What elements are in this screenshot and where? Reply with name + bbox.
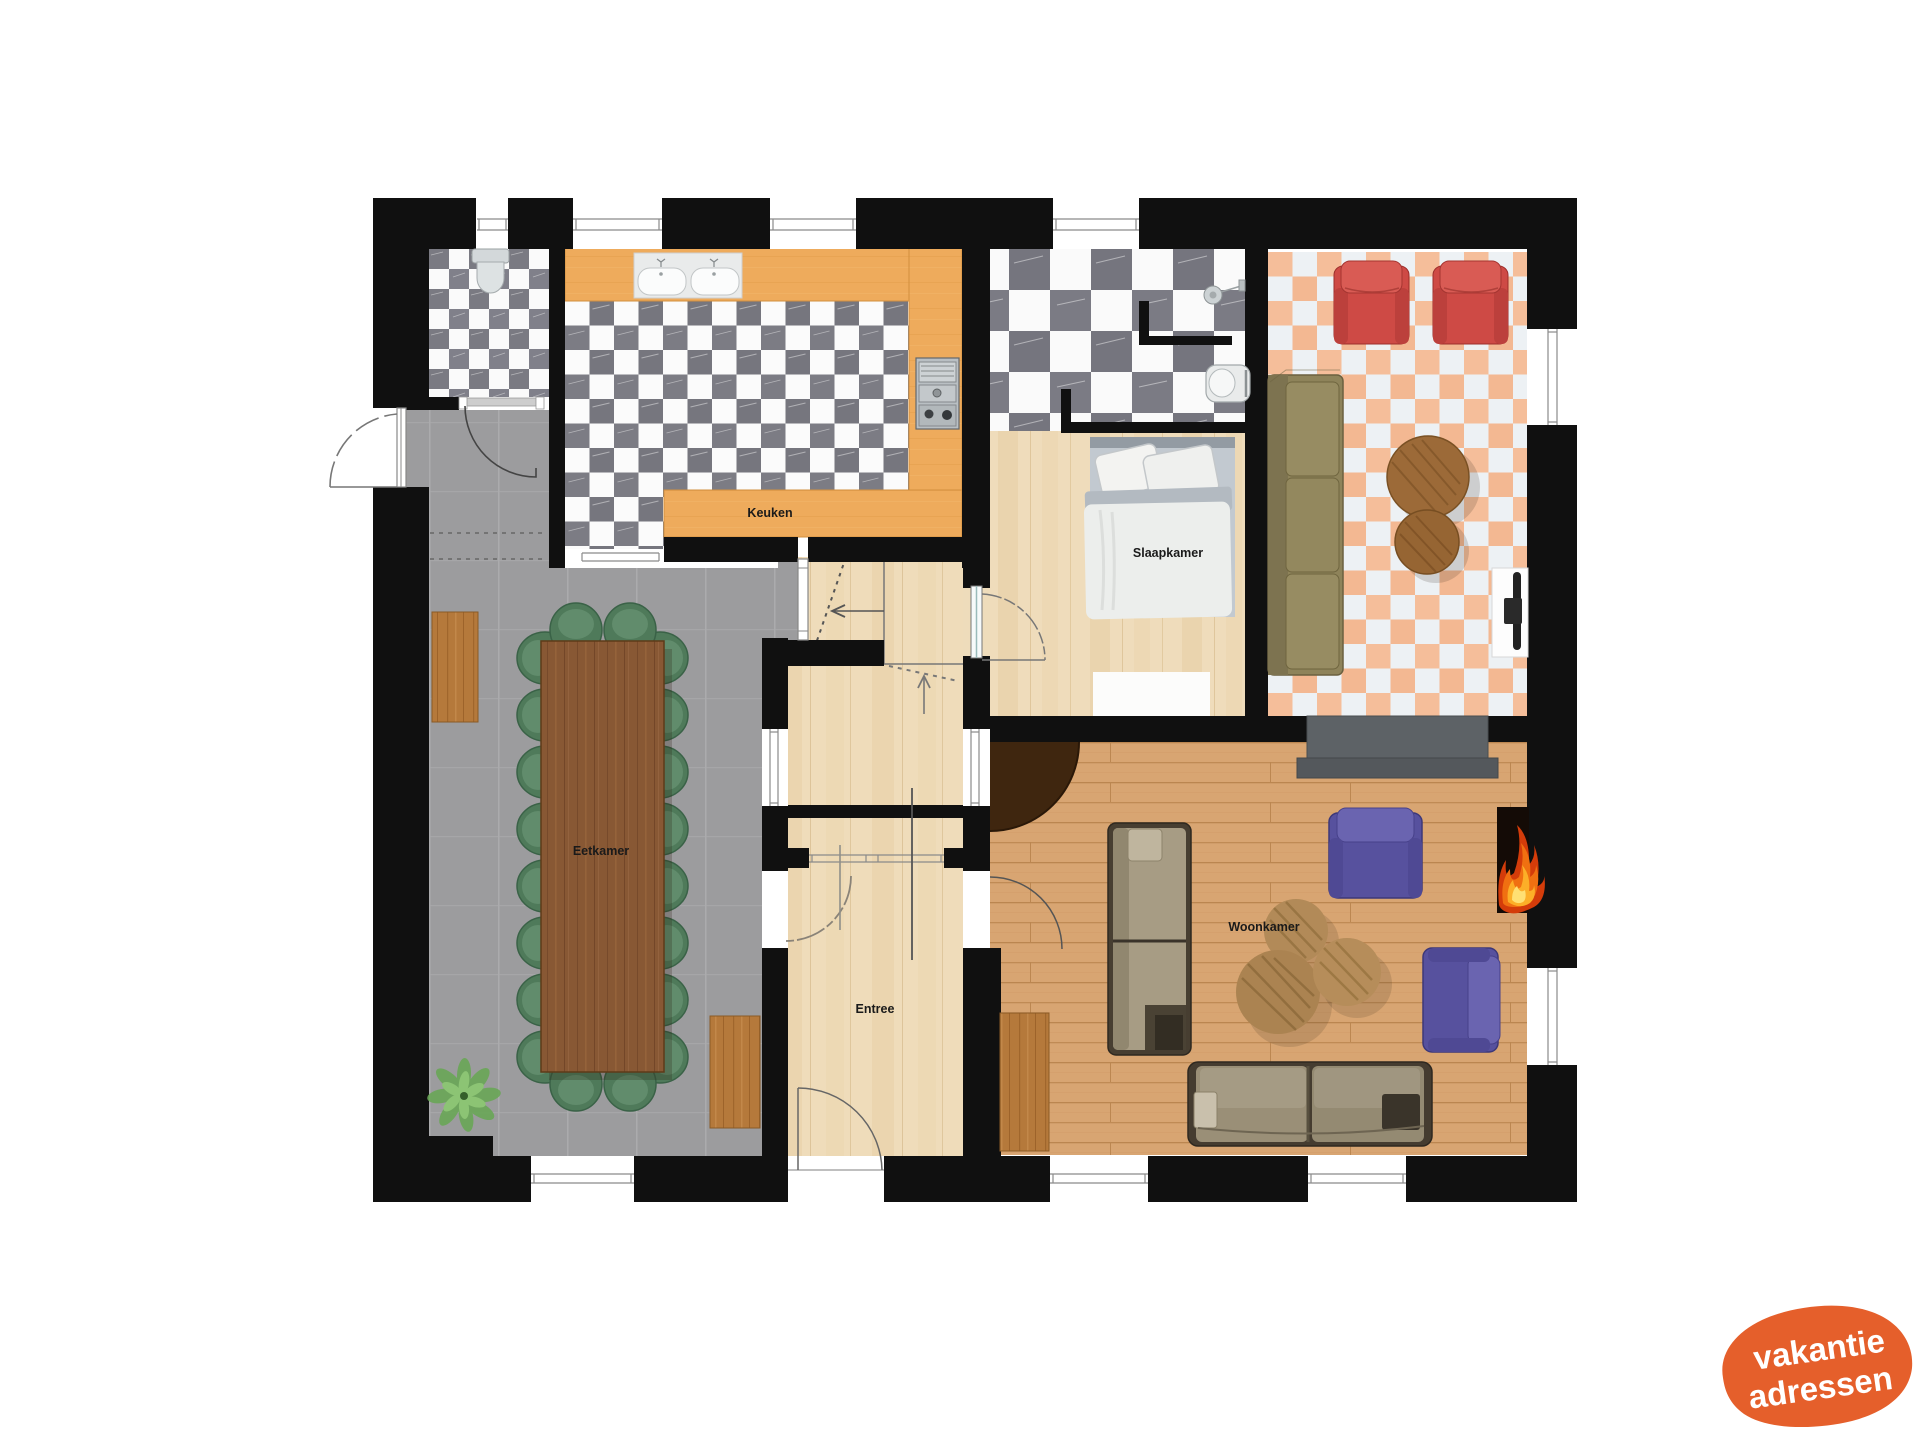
- svg-text:Eetkamer: Eetkamer: [573, 844, 629, 858]
- svg-text:Entree: Entree: [856, 1002, 895, 1016]
- svg-text:Woonkamer: Woonkamer: [1228, 920, 1299, 934]
- svg-text:Slaapkamer: Slaapkamer: [1133, 546, 1203, 560]
- svg-text:Keuken: Keuken: [747, 506, 792, 520]
